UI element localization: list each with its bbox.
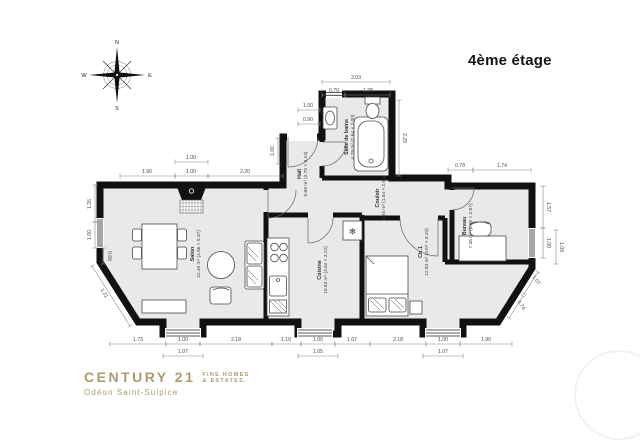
svg-text:1.00: 1.00 xyxy=(178,337,188,343)
desk xyxy=(459,236,506,261)
svg-text:1.00: 1.00 xyxy=(545,238,551,248)
apartment-floor xyxy=(100,94,532,334)
dimension: 1.74 xyxy=(473,163,531,173)
svg-text:1.00: 1.00 xyxy=(270,146,276,156)
dimension: 1.00 xyxy=(298,103,320,113)
svg-text:1.31: 1.31 xyxy=(99,288,109,300)
dining-chair xyxy=(133,229,142,241)
compass-east-point xyxy=(117,72,145,78)
dimension: 1.00 xyxy=(270,138,281,164)
dimension: 1.90 xyxy=(460,337,512,347)
floor-title: 4ème étage xyxy=(468,52,628,69)
svg-text:1.07: 1.07 xyxy=(530,275,541,287)
agency-logo: CENTURY 21 FINE HOMES & ESTATES. Odéon S… xyxy=(84,370,250,397)
svg-text:1.28: 1.28 xyxy=(363,88,373,94)
svg-text:1.10: 1.10 xyxy=(281,337,291,343)
dimension: 1.07 xyxy=(163,349,203,359)
compass-w-label: W xyxy=(81,73,87,79)
svg-text:1.90: 1.90 xyxy=(481,337,491,343)
svg-text:1.07: 1.07 xyxy=(438,349,448,355)
compass-n-label: N xyxy=(115,40,119,46)
svg-text:0.78: 0.78 xyxy=(455,163,465,169)
compass-west-point xyxy=(89,72,117,78)
bathtub xyxy=(354,117,388,171)
svg-text:1.07: 1.07 xyxy=(347,337,357,343)
salon-left-window xyxy=(96,218,104,248)
compass-rose: N S W E xyxy=(81,40,152,112)
dimension: 2.20 xyxy=(208,169,283,179)
dimension: 2.03 xyxy=(322,75,390,85)
svg-text:2.29: 2.29 xyxy=(401,133,407,143)
svg-text:1.00: 1.00 xyxy=(87,230,93,240)
fridge: ❄ xyxy=(343,221,362,240)
svg-text:1.90: 1.90 xyxy=(142,169,152,175)
dimension: 1.90 xyxy=(120,169,175,179)
dimension: 1.26 xyxy=(87,185,98,222)
svg-text:2.03: 2.03 xyxy=(351,75,361,81)
svg-text:2.18: 2.18 xyxy=(231,337,241,343)
sideboard xyxy=(142,300,186,313)
svg-text:1.00: 1.00 xyxy=(303,103,313,109)
dimension: 1.73 xyxy=(110,337,166,347)
dimension: 1.57 xyxy=(541,186,552,228)
agency-name: Odéon Saint-Sulpice xyxy=(84,388,250,397)
double-bed xyxy=(366,256,408,316)
svg-text:1.07: 1.07 xyxy=(178,349,188,355)
dimension: 2.29 xyxy=(397,100,408,176)
bureau-right-window xyxy=(528,228,536,258)
dimension: 1.00 xyxy=(541,228,552,258)
dimension: 1.00 xyxy=(175,169,208,179)
dimension: 1.07 xyxy=(423,349,463,359)
fridge-snowflake-icon: ❄ xyxy=(349,227,357,237)
dining-chair xyxy=(133,247,142,259)
century21-brand: CENTURY 21 xyxy=(84,370,195,385)
svg-text:1.00: 1.00 xyxy=(186,155,196,161)
svg-text:1.73: 1.73 xyxy=(133,337,143,343)
dining-chair xyxy=(178,229,187,241)
svg-text:1.57: 1.57 xyxy=(545,202,551,212)
compass-s-label: S xyxy=(115,106,119,112)
dishwasher xyxy=(270,300,287,313)
dimension: 0.90 xyxy=(298,117,320,127)
dimension: 1.10 xyxy=(272,337,301,347)
svg-text:1.09: 1.09 xyxy=(558,242,564,252)
bathroom-sink xyxy=(323,107,337,129)
dimension: 1.07 xyxy=(335,337,370,347)
dimension: 1.00 xyxy=(175,155,208,165)
dining-chair xyxy=(178,247,187,259)
entrance-opening xyxy=(287,133,317,141)
svg-text:0.66: 0.66 xyxy=(106,251,112,261)
svg-text:0.90: 0.90 xyxy=(303,117,313,123)
svg-text:1.00: 1.00 xyxy=(186,169,196,175)
svg-text:1.00: 1.00 xyxy=(438,337,448,343)
svg-text:1.05: 1.05 xyxy=(313,349,323,355)
dimension: 1.00 xyxy=(87,222,98,248)
dimension: 2.18 xyxy=(200,337,272,347)
armchair xyxy=(210,287,231,304)
dimension: 0.78 xyxy=(448,163,473,173)
sofa xyxy=(245,241,264,289)
toilet xyxy=(365,97,380,119)
compass-north-point xyxy=(114,47,120,75)
compass-e-label: E xyxy=(148,73,152,79)
svg-text:2.18: 2.18 xyxy=(393,337,403,343)
kitchen-sink xyxy=(270,276,287,296)
dining-table xyxy=(142,224,177,269)
dimension: 1.09 xyxy=(554,230,565,264)
century21-tagline: FINE HOMES & ESTATES. xyxy=(202,370,249,384)
svg-text:2.20: 2.20 xyxy=(240,169,250,175)
round-table xyxy=(208,252,235,279)
svg-text:1.74: 1.74 xyxy=(497,163,507,169)
dimension: 2.18 xyxy=(370,337,426,347)
svg-text:0.70: 0.70 xyxy=(329,88,339,94)
nightstand xyxy=(410,301,422,314)
svg-text:1.26: 1.26 xyxy=(87,199,93,209)
svg-text:1.00: 1.00 xyxy=(313,337,323,343)
dimension: 1.05 xyxy=(298,349,338,359)
compass-south-point xyxy=(114,75,120,103)
